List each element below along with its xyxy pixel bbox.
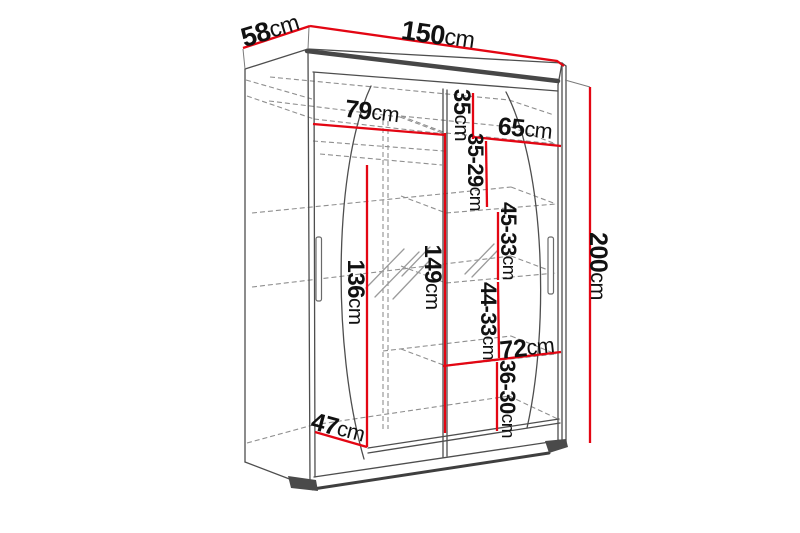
- right-shelf2-depth-left: [401, 196, 446, 213]
- left-shelf-bottom: [313, 141, 444, 151]
- dim-label-usable-depth: 47cm: [308, 407, 368, 448]
- floor-depth-left: [247, 425, 313, 443]
- left-door-handle: [316, 237, 322, 301]
- dim-label-left-section: 79cm: [343, 95, 400, 129]
- dim-label-depth: 58cm: [237, 7, 302, 53]
- dim-label-right-gap-4: 36-30cm: [496, 360, 521, 438]
- left-foot: [288, 476, 318, 491]
- base-bottom-edge: [313, 453, 549, 489]
- dim-label-right-gap-3: 44-33cm: [477, 282, 502, 360]
- right-shelf4-depth-left: [401, 349, 446, 366]
- dim-label-interior: 149cm: [420, 244, 447, 309]
- diagram-canvas: 58cm 150cm 79cm 35cm 65cm 35-29cm 45-33c…: [0, 0, 800, 533]
- ceiling-depth-left: [246, 80, 312, 99]
- left-shelf-depth-left: [247, 96, 314, 119]
- floor-front-edge: [368, 419, 559, 448]
- hanging-rod: [320, 154, 442, 165]
- right-door-handle: [548, 237, 554, 294]
- floor-front-edge-2: [368, 423, 560, 453]
- top-face-left-edge: [245, 49, 308, 69]
- dim-label-right-gap-1: 35-29cm: [464, 133, 489, 211]
- left-panel-front-edge: [308, 51, 310, 485]
- wardrobe-dimension-diagram: 58cm 150cm 79cm 35cm 65cm 35-29cm 45-33c…: [0, 0, 800, 533]
- dim-label-right-gap-2: 45-33cm: [497, 202, 522, 280]
- dim-label-hanging: 136cm: [343, 259, 370, 324]
- dim-label-right-section: 65cm: [496, 112, 553, 146]
- dim-label-height: 200cm: [584, 232, 612, 300]
- right-shelf1-depth-left: [401, 116, 446, 133]
- right-foot: [545, 439, 568, 453]
- dimension-labels: 58cm 150cm 79cm 35cm 65cm 35-29cm 45-33c…: [237, 7, 612, 449]
- dim-label-width: 150cm: [400, 15, 477, 55]
